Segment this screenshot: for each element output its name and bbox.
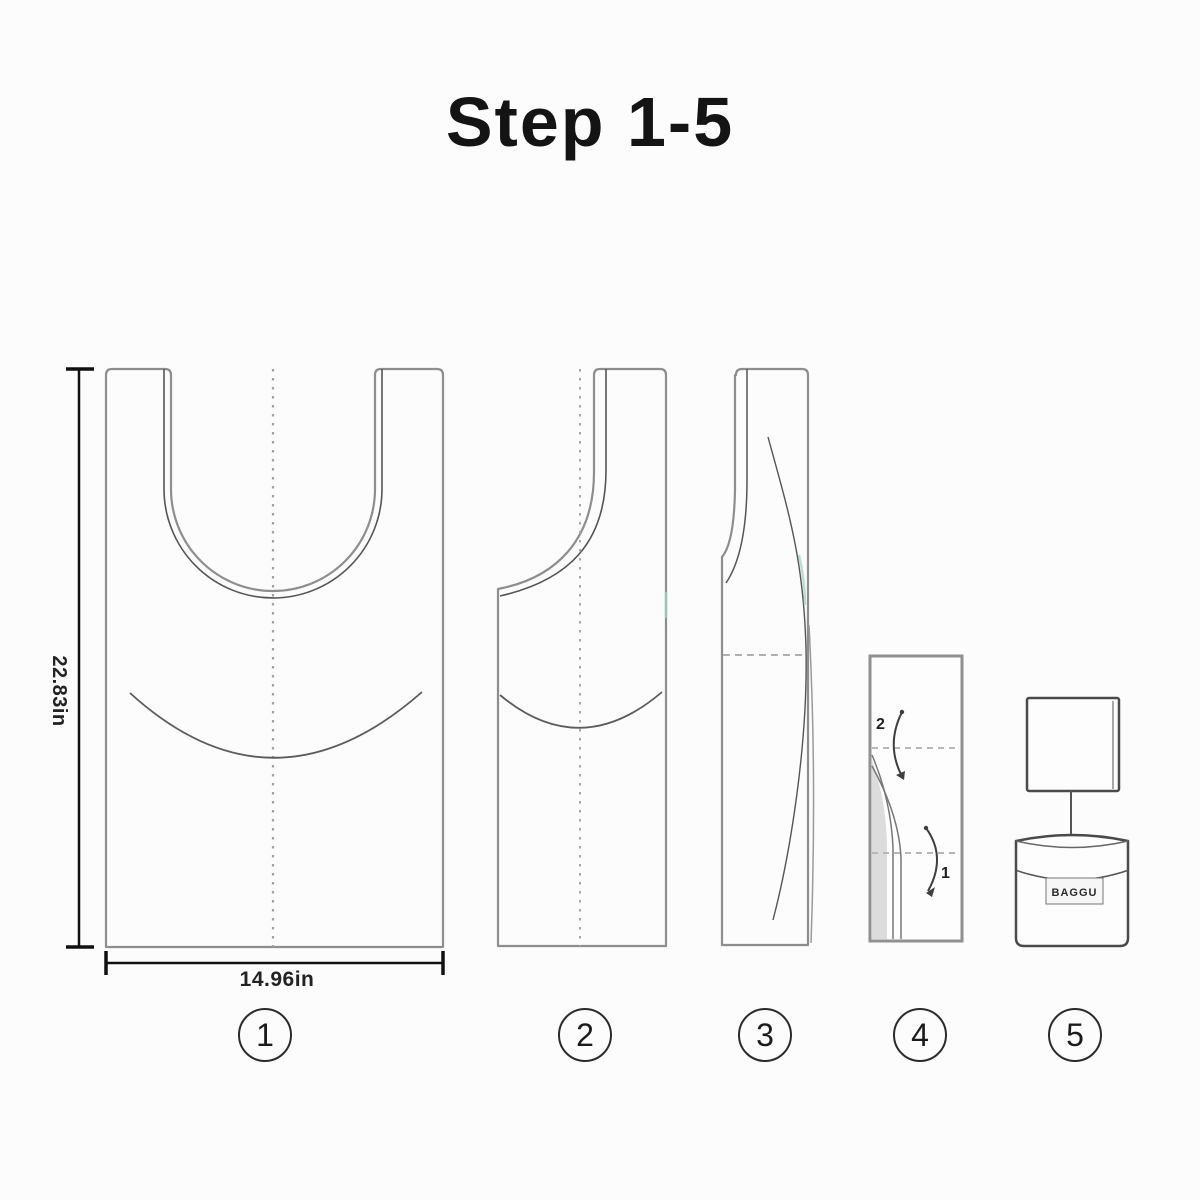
step-number-2-text: 2 [576, 1017, 594, 1054]
fold-label-2: 2 [876, 716, 885, 733]
step-number-5: 5 [1048, 1008, 1102, 1062]
figure-step-1-flat-bag [66, 369, 443, 975]
figure-step-3-strip-fold [722, 369, 814, 945]
step-number-4: 4 [893, 1008, 947, 1062]
folding-instructions-page: Step 1-5 [0, 0, 1200, 1200]
step-number-3: 3 [738, 1008, 792, 1062]
strip-handle-inner-line [726, 369, 747, 583]
brand-label-text: BAGGU [1052, 887, 1098, 899]
strip-outline [722, 369, 808, 945]
height-dimension-label: 22.83in [48, 631, 70, 751]
bottom-fold-curve [130, 692, 422, 758]
fold-arrow-2-start-dot [900, 710, 904, 714]
step-number-4-text: 4 [911, 1017, 929, 1054]
folded-square-flap [1027, 698, 1119, 791]
figure-step-2-half-fold [498, 369, 666, 946]
bag-outline [106, 369, 443, 947]
strip-right-layer-line [809, 625, 814, 943]
half-fold-handle-inner-line [500, 369, 606, 596]
step-number-2: 2 [558, 1008, 612, 1062]
step-number-3-text: 3 [756, 1017, 774, 1054]
step-number-5-text: 5 [1066, 1017, 1084, 1054]
strip-drape-curve [768, 437, 806, 920]
width-dimension-label: 14.96in [217, 968, 337, 992]
fold-label-1: 1 [941, 865, 950, 882]
step-number-1: 1 [238, 1008, 292, 1062]
figure-step-5-pouch: BAGGU [1015, 698, 1129, 946]
half-fold-outline [498, 369, 666, 946]
handle-cutout-inner-line [164, 369, 382, 598]
fold-arrow-1-start-dot [924, 826, 928, 830]
strip-teal-accent [799, 555, 805, 605]
step-number-1-text: 1 [256, 1017, 274, 1054]
figure-step-4-fold-arrows: 2 1 [870, 656, 962, 941]
